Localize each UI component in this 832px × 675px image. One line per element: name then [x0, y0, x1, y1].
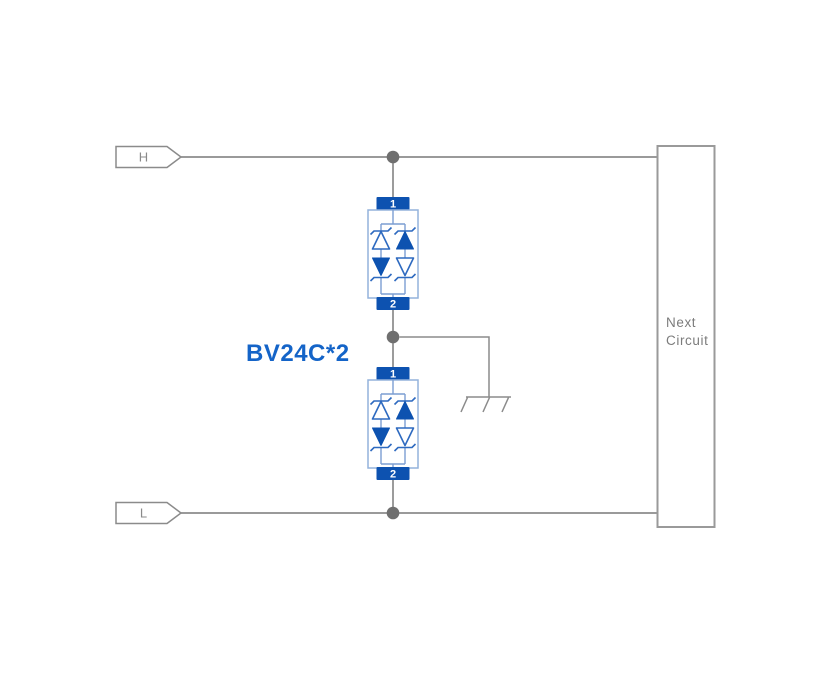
port-l-label: L [140, 506, 147, 521]
junction-dot-bottom [387, 507, 400, 520]
tvs-block-2: 1 2 [368, 367, 418, 481]
component-part-number: BV24C*2 [246, 340, 350, 367]
next-circuit-label-line2: Circuit [666, 333, 708, 348]
tvs1-pin2-label: 2 [390, 299, 396, 311]
tvs-block-1: 1 2 [368, 197, 418, 311]
chassis-ground-icon [461, 397, 511, 412]
wires [181, 157, 657, 513]
port-flag-h-shape [116, 147, 181, 168]
junction-dot-middle [387, 331, 400, 344]
tvs1-pin1-label: 1 [390, 199, 396, 211]
tvs2-pin2-label: 2 [390, 469, 396, 481]
next-circuit-label-line1: Next [666, 315, 696, 330]
port-flag-l: L [116, 503, 181, 524]
port-flag-h: H [116, 147, 181, 168]
circuit-diagram: H L 1 2 1 2 [0, 0, 832, 675]
port-h-label: H [139, 150, 148, 165]
schematic-canvas: H L 1 2 1 2 [0, 0, 832, 675]
tvs2-pin1-label: 1 [390, 369, 396, 381]
junction-dot-top [387, 151, 400, 164]
next-circuit-block: Next Circuit [658, 146, 715, 527]
port-flag-l-shape [116, 503, 181, 524]
